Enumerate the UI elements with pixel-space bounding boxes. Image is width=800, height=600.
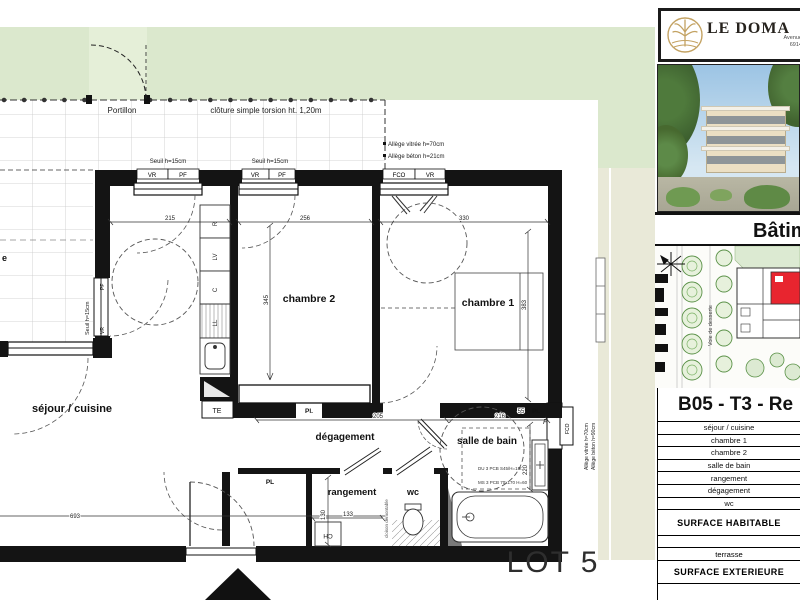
allege-notes-right: Allège vitrée h=70cm Allège béton h=90cm [584,423,597,470]
brand-address: Avenue 6914 [783,35,800,49]
row-degagement: dégagement [708,486,750,495]
vr-tag: VR [426,173,435,179]
pf-tag: PF [100,284,106,290]
room-label-chambre2: chambre 2 [283,293,336,305]
allege-notes: Allège vitrée h=70cm Allège béton h=21cm [383,142,445,160]
dim-133: 133 [343,512,354,518]
dim-383: 383 [522,299,528,310]
surface-exterieure-row: SURFACE EXTERIEURE [658,560,800,583]
bed-chambre1 [380,273,543,350]
floor-plan-page: Portillon clôture simple torsion ht. 1,2… [0,0,800,600]
placard-chambre1-label: Pl. [532,408,540,415]
salle-de-bain-fixtures: DU 3 PCB S45/H=150 MS 3 PCB 70x170 H=60 … [440,407,548,542]
dim-205: 205 [373,414,384,420]
seuil-label-2: Seuil h=15cm [252,159,289,165]
photo-building [706,109,786,173]
table-row: chambre 2 [658,446,800,459]
allege-right-2: Allège béton h=90cm [591,423,597,470]
dim-215: 215 [165,216,176,222]
dim-345: 345 [264,294,270,305]
table-row: rangement [658,471,800,484]
te-label: TE [213,408,222,415]
turning-circle-sejour [112,239,198,325]
surface-habitable-label: SURFACE HABITABLE [677,518,781,528]
unit-spec-block: B05 - T3 - Re séjour / cuisine chambre 1… [657,388,800,600]
vr-tag: VR [100,327,106,334]
row-wc: wc [724,499,733,508]
lot-number: LOT 5 [507,546,600,579]
fco-tag: FCO [565,423,571,434]
fco-tag: FCO [393,173,406,179]
door-leaves [344,419,447,475]
row-chambre1: chambre 1 [711,436,747,445]
room-label-rangement: rangement [328,487,377,498]
placard-label: Pl. [305,408,313,415]
row-terrasse: terrasse [715,550,742,559]
table-empty-row [658,583,800,600]
row-rangement: rangement [711,474,747,483]
table-row: wc [658,497,800,510]
tree-logo-icon [664,12,706,58]
side-path-strip [596,168,655,560]
room-label-sejour: séjour / cuisine [32,403,112,415]
site-plan-drawing: Voie de desserte [655,246,800,388]
cloison-note: cloison démontable [384,499,389,538]
pl-closet-label: PL [266,479,274,486]
terrasse-fragment: e [2,253,7,263]
door-degagement [164,472,222,530]
terrace-tiles [0,100,385,352]
row-salle-de-bain: salle de bain [708,461,751,470]
window-band-west [8,342,93,434]
allege-beton-label: Allège béton h=21cm [388,154,445,160]
north-arrow-icon [205,568,271,600]
vr-tag: VR [251,173,260,179]
window-chambre1: FCO VR [380,169,467,283]
batiment-header: Bâtim [655,212,800,246]
pf-tag: PF [179,173,187,179]
row-chambre2: chambre 2 [711,448,747,457]
dim-256: 256 [300,216,311,222]
dim-693: 693 [70,514,81,520]
dim-330: 330 [459,216,470,222]
sdb-note-2: MS 3 PCB 70x170 H=60 [478,480,528,485]
surface-habitable-row: SURFACE HABITABLE [658,509,800,535]
site-plan: Voie de desserte [655,246,800,388]
cooker-label: C [213,287,219,292]
unit-title: B05 - T3 - Re [658,388,800,421]
sdb-note-1: DU 3 PCB S45/H=150 [478,466,523,471]
room-label-chambre1: chambre 1 [462,297,515,309]
developer-logo-card: LE DOMA Avenue 6914 [658,8,800,62]
dim-130: 130 [321,509,327,520]
dishwasher-label: LV [213,254,219,261]
allege-right-1: Allège vitrée h=70cm [584,423,590,470]
address-line-1: Avenue [783,35,800,42]
allege-vitree-label: Allège vitrée h=70cm [388,142,444,148]
surface-exterieure-label: SURFACE EXTERIEURE [674,567,784,577]
table-row: chambre 1 [658,434,800,447]
brand-name: LE DOMA [707,20,790,38]
floor-plan-drawing: Portillon clôture simple torsion ht. 1,2… [0,0,655,600]
seuil-label-3: Seuil h=15cm [85,301,91,335]
window-sejour-west: PF VR [94,278,168,336]
dim-220: 220 [523,464,529,475]
room-label-degagement: dégagement [316,432,376,443]
row-sejour: séjour / cuisine [704,423,755,432]
duct-te: TE [200,377,234,418]
table-row: dégagement [658,484,800,497]
washer-label: LL [213,319,219,326]
entry-door [186,482,256,555]
table-empty-row [658,535,800,547]
window-chambre-sejour: VR PF [134,169,202,253]
window-chambre2: VR PF [239,169,298,248]
room-label-sdb: salle de bain [457,436,517,447]
table-row: terrasse [658,547,800,560]
table-row: salle de bain [658,459,800,472]
room-label-wc: wc [406,487,419,497]
vr-tag: VR [148,173,157,179]
pf-tag: PF [278,173,286,179]
dim-55: 55 [518,409,525,415]
batiment-title: Bâtim [753,220,800,243]
address-line-2: 6914 [783,42,800,49]
site-buildings [737,268,800,338]
building-photo [657,64,800,212]
sidebar: LE DOMA Avenue 6914 Bâtim [655,0,800,600]
door-chambre1 [380,346,437,403]
voie-de-desserte-label: Voie de desserte [708,305,714,346]
dim-216: 216 [495,414,506,420]
cloture-label: clôture simple torsion ht. 1,20m [210,106,321,115]
portillon-label: Portillon [108,106,137,115]
seuil-label-1: Seuil h=15cm [150,159,187,165]
table-row: séjour / cuisine [658,421,800,434]
